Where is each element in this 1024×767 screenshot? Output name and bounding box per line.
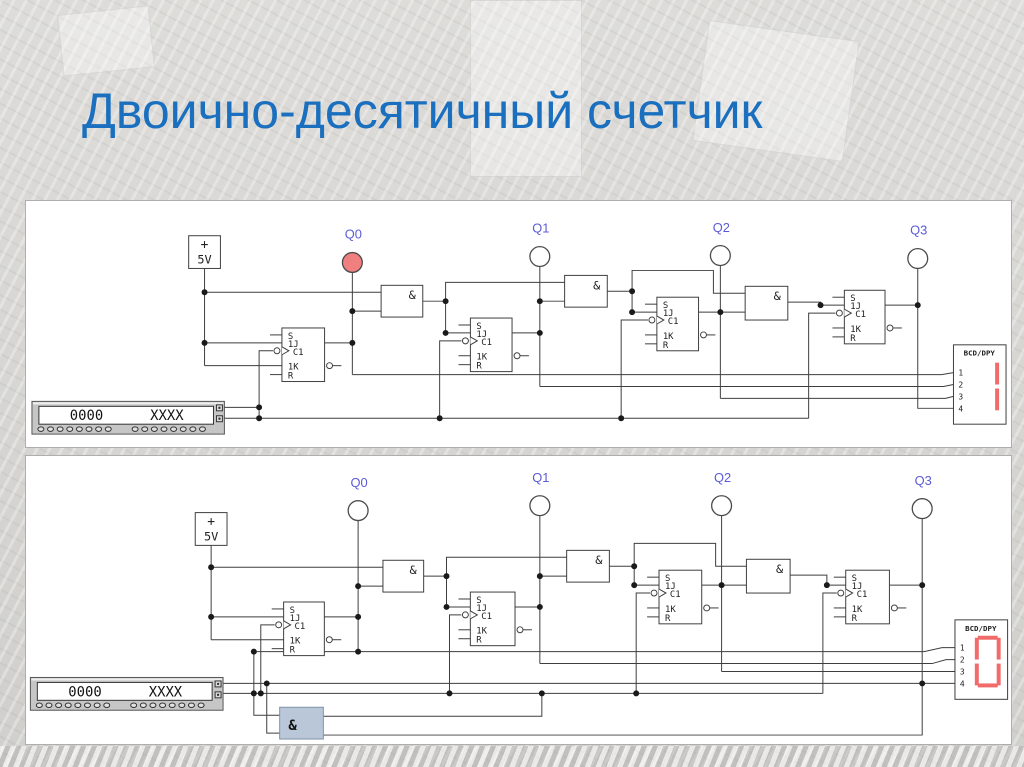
probe-label: Q0 xyxy=(350,475,367,490)
svg-text:C1: C1 xyxy=(670,590,681,600)
terminal-dot-icon xyxy=(65,703,71,708)
probe-label: Q3 xyxy=(910,223,927,238)
svg-text:+: + xyxy=(201,238,209,253)
svg-text:R: R xyxy=(850,334,856,344)
word-generator-address: 0000 xyxy=(68,684,101,700)
not-q-bubble-icon xyxy=(326,637,332,643)
svg-text:1: 1 xyxy=(960,644,965,653)
and-gate: & xyxy=(746,559,790,593)
svg-text:R: R xyxy=(852,614,858,624)
svg-text:R: R xyxy=(476,636,482,646)
and-gate: & xyxy=(567,550,610,582)
svg-text:&: & xyxy=(774,289,782,303)
jk-flip-flop: S1JC11KR xyxy=(838,570,907,624)
svg-text:R: R xyxy=(288,372,294,382)
svg-text:R: R xyxy=(476,362,482,372)
svg-text:1: 1 xyxy=(958,369,963,378)
terminal-dot-icon xyxy=(140,703,146,708)
terminal-dot-icon xyxy=(142,427,148,432)
probe-indicator-q3: Q3 xyxy=(912,473,932,519)
svg-text:C1: C1 xyxy=(855,310,866,320)
svg-text:BCD/DPY: BCD/DPY xyxy=(964,349,996,358)
clock-bubble-icon xyxy=(651,590,657,596)
svg-text:3: 3 xyxy=(958,392,963,401)
svg-text:5V: 5V xyxy=(197,252,211,266)
word-generator-data: XXXX xyxy=(150,408,184,424)
jk-flip-flop: S1JC11KR xyxy=(836,290,901,344)
terminal-dot-icon xyxy=(171,427,177,432)
probe-indicator-q1: Q1 xyxy=(530,221,550,267)
terminal-dot-icon xyxy=(104,703,110,708)
bcd-display: BCD/DPY1234 xyxy=(955,620,1008,699)
clock-bubble-icon xyxy=(838,590,844,596)
not-q-bubble-icon xyxy=(704,605,710,611)
word-generator: 0000XXXX xyxy=(30,677,223,710)
terminal-dot-icon xyxy=(179,703,185,708)
svg-text:BCD/DPY: BCD/DPY xyxy=(965,624,997,633)
probe-indicator-q0: Q0 xyxy=(348,475,368,521)
svg-text:C1: C1 xyxy=(668,317,679,327)
probe-label: Q1 xyxy=(532,470,549,485)
probe-indicator-q3: Q3 xyxy=(908,223,928,269)
svg-text:C1: C1 xyxy=(295,622,306,632)
background-chip-shape xyxy=(57,5,155,76)
terminal-dot-icon xyxy=(132,427,138,432)
svg-text:4: 4 xyxy=(958,404,963,413)
probe-indicator-q2: Q2 xyxy=(712,470,732,516)
clock-bubble-icon xyxy=(649,317,655,323)
circuit-schematic-stopped: +5VS1JC11KRS1JC11KRS1JC11KRS1JC11KR&&&&Q… xyxy=(26,456,1011,744)
probe-label: Q1 xyxy=(532,221,549,236)
svg-text:C1: C1 xyxy=(481,612,492,622)
svg-text:2: 2 xyxy=(958,380,963,389)
word-generator-address: 0000 xyxy=(70,408,103,424)
jk-flip-flop: S1JC11KR xyxy=(462,592,532,646)
terminal-dot-icon xyxy=(188,703,194,708)
svg-text:R: R xyxy=(665,614,671,624)
svg-text:&: & xyxy=(595,553,603,567)
terminal-dot-icon xyxy=(75,703,81,708)
terminal-dot-icon xyxy=(150,703,156,708)
terminal-dot-icon xyxy=(36,703,42,708)
terminal-dot-icon xyxy=(48,427,54,432)
clock-bubble-icon xyxy=(276,622,282,628)
terminal-dot-icon xyxy=(199,427,205,432)
clock-bubble-icon xyxy=(462,612,468,618)
not-q-bubble-icon xyxy=(514,353,520,359)
probe-label: Q3 xyxy=(915,473,932,488)
probe-label: Q2 xyxy=(714,470,731,485)
bcd-display: BCD/DPY1234 xyxy=(953,345,1006,424)
power-source-5v: +5V xyxy=(189,236,221,269)
clock-bubble-icon xyxy=(274,348,280,354)
terminal-dot-icon xyxy=(96,427,102,432)
terminal-dot-icon xyxy=(67,427,73,432)
svg-text:&: & xyxy=(409,288,417,302)
terminal-dot-icon xyxy=(105,427,111,432)
svg-text:3: 3 xyxy=(960,667,965,676)
svg-text:&: & xyxy=(288,718,297,734)
not-q-bubble-icon xyxy=(327,363,333,369)
and-gate: & xyxy=(565,275,608,307)
and-gate: & xyxy=(381,285,423,317)
svg-text:&: & xyxy=(410,563,418,577)
circuit-panel-top: +5VS1JC11KRS1JC11KRS1JC11KRS1JC11KR&&&Q0… xyxy=(25,200,1012,448)
jk-flip-flop: S1JC11KR xyxy=(649,297,715,351)
terminal-dot-icon xyxy=(190,427,196,432)
word-generator: 0000XXXX xyxy=(32,401,224,434)
jk-flip-flop: S1JC11KR xyxy=(651,570,719,624)
clock-bubble-icon xyxy=(462,338,468,344)
svg-text:&: & xyxy=(776,562,784,576)
svg-text:5V: 5V xyxy=(204,529,218,543)
terminal-dot-icon xyxy=(169,703,175,708)
jk-flip-flop: S1JC11KR xyxy=(274,328,341,382)
probe-indicator-q2: Q2 xyxy=(710,220,730,266)
terminal-dot-icon xyxy=(160,703,166,708)
svg-text:+: + xyxy=(207,515,215,530)
terminal-dot-icon xyxy=(161,427,167,432)
reset-and-gate: & xyxy=(280,707,324,739)
svg-text:&: & xyxy=(593,278,601,292)
background-stripe-band xyxy=(0,746,1024,767)
svg-text:C1: C1 xyxy=(481,338,492,348)
probe-indicator-q0: Q0 xyxy=(342,227,362,273)
terminal-dot-icon xyxy=(94,703,100,708)
not-q-bubble-icon xyxy=(701,332,707,338)
circuit-schematic-running: +5VS1JC11KRS1JC11KRS1JC11KRS1JC11KR&&&Q0… xyxy=(26,201,1011,447)
not-q-bubble-icon xyxy=(891,605,897,611)
terminal-dot-icon xyxy=(57,427,63,432)
svg-text:2: 2 xyxy=(960,656,965,665)
slide-title: Двоично-десятичный счетчик xyxy=(82,86,762,136)
jk-flip-flop: S1JC11KR xyxy=(276,602,342,656)
terminal-dot-icon xyxy=(85,703,91,708)
power-source-5v: +5V xyxy=(195,513,227,546)
terminal-dot-icon xyxy=(198,703,204,708)
terminal-dot-icon xyxy=(151,427,157,432)
svg-text:C1: C1 xyxy=(293,348,304,358)
and-gate: & xyxy=(383,560,424,592)
terminal-dot-icon xyxy=(76,427,82,432)
not-q-bubble-icon xyxy=(517,627,523,633)
probe-label: Q0 xyxy=(345,227,362,242)
and-gate: & xyxy=(745,286,788,320)
terminal-dot-icon xyxy=(46,703,52,708)
word-generator-data: XXXX xyxy=(149,684,183,700)
svg-text:R: R xyxy=(663,341,669,351)
not-q-bubble-icon xyxy=(887,325,893,331)
terminal-dot-icon xyxy=(131,703,137,708)
svg-text:4: 4 xyxy=(960,679,965,688)
probe-label: Q2 xyxy=(713,220,730,235)
terminal-dot-icon xyxy=(180,427,186,432)
jk-flip-flop: S1JC11KR xyxy=(462,318,528,372)
terminal-dot-icon xyxy=(38,427,44,432)
presentation-slide: Двоично-десятичный счетчик +5VS1JC11KRS1… xyxy=(0,0,1024,767)
terminal-dot-icon xyxy=(86,427,92,432)
svg-text:C1: C1 xyxy=(857,590,868,600)
terminal-dot-icon xyxy=(56,703,62,708)
svg-text:R: R xyxy=(290,646,296,656)
probe-indicator-q1: Q1 xyxy=(530,470,550,516)
clock-bubble-icon xyxy=(836,310,842,316)
circuit-panel-bottom: +5VS1JC11KRS1JC11KRS1JC11KRS1JC11KR&&&&Q… xyxy=(25,455,1012,745)
